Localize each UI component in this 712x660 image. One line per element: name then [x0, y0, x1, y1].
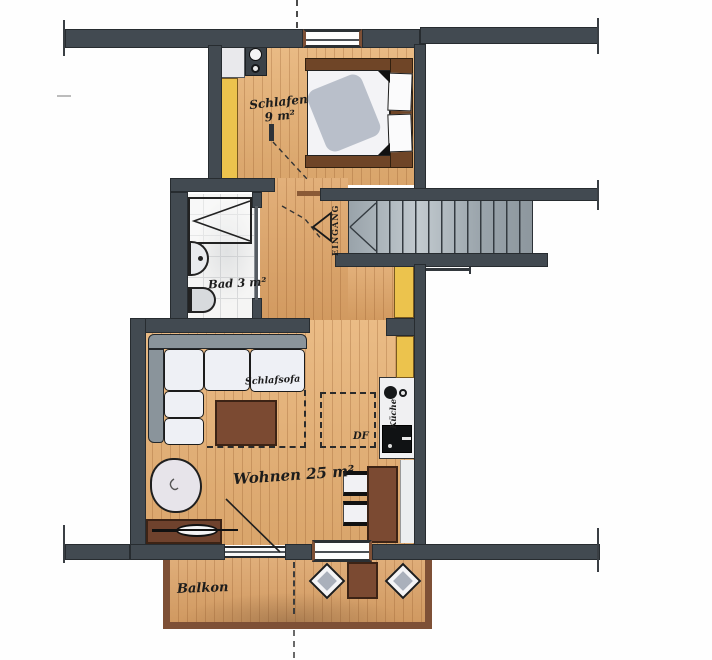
- sofa-cushion-corner: [164, 349, 204, 391]
- room-label-balkon: Balkon: [177, 580, 229, 597]
- bed-corner-mark-bottom: [378, 143, 390, 155]
- wohnen-area: 25 m²: [305, 462, 355, 483]
- stair-handrail: [425, 268, 471, 271]
- hob-burner-small: [399, 389, 407, 397]
- kitchen-tall-cabinet: [396, 336, 414, 378]
- window-mullion: [306, 39, 359, 41]
- kitchen-label: Küche: [389, 399, 399, 429]
- wall-tick-mid-right: [597, 180, 599, 210]
- shower: [188, 197, 252, 244]
- living-right-wall: [414, 264, 426, 545]
- dresser-knob-large: [249, 48, 262, 61]
- stairwell-top-wall: [320, 188, 598, 201]
- bottom-wall-left: [130, 544, 225, 560]
- oven-handle: [402, 437, 411, 440]
- sideboard-bowl-axis: [156, 529, 238, 531]
- top-wall-right: [362, 29, 420, 48]
- entrance-threshold: [297, 191, 320, 196]
- duct-strip: [400, 460, 414, 543]
- axis-dash-balcony: [293, 562, 295, 614]
- axis-dash-top: [296, 0, 298, 28]
- bed-pillow-bottom: [387, 114, 412, 153]
- wall-tick-top-right: [597, 18, 599, 54]
- living-window: [312, 540, 372, 562]
- wall-tick-bottom-left: [63, 525, 65, 563]
- stair-steps: [376, 201, 532, 253]
- bed-corner-mark-top: [378, 71, 390, 83]
- sofa-backrest-top: [148, 334, 307, 349]
- dresser-knob-small: [251, 64, 260, 73]
- window-mullion-2: [315, 551, 369, 553]
- top-wall-extension: [420, 27, 598, 44]
- entrance-label: EINGANG: [330, 202, 340, 256]
- bed-pillow-top: [387, 73, 412, 112]
- bedroom-door-leaf: [269, 124, 274, 141]
- bedroom-left-wall: [208, 45, 222, 185]
- bottom-wall-mid-stub: [285, 544, 312, 560]
- sofa-cushion-chaise-1: [164, 391, 204, 418]
- floor-plan: Schlafen 9 m² Bad 3 m² EINGANG Schlafsof…: [0, 0, 712, 660]
- hall-lower-floor: [348, 267, 398, 320]
- sofa-cushion-mid: [204, 349, 250, 391]
- balcony-door-glass-line: [225, 551, 285, 553]
- hob-burner-large: [384, 386, 397, 399]
- sofa-backrest-left: [148, 349, 164, 443]
- sofa-foldout-outline: [207, 390, 306, 448]
- pencil-line: [57, 95, 71, 97]
- bad-name: Bad: [208, 276, 234, 291]
- bedroom-bottom-wall: [170, 178, 275, 192]
- bottom-wall-extension-left: [65, 544, 130, 560]
- bottom-wall-right: [372, 544, 600, 560]
- roof-window-label: DF: [353, 431, 369, 442]
- hall-cabinet: [394, 266, 414, 318]
- living-left-wall: [130, 318, 146, 558]
- living-top-wall: [130, 318, 310, 333]
- bathroom-left-wall: [170, 192, 188, 320]
- dining-table: [367, 466, 398, 543]
- stairwell-bottom-wall: [335, 253, 548, 267]
- axis-dash-bottom: [293, 630, 295, 658]
- bedroom-right-wall: [414, 44, 426, 194]
- round-table: [150, 458, 202, 513]
- sink-drain: [198, 256, 203, 261]
- wall-tick-bottom-right: [597, 528, 599, 572]
- bad-area: 3 m²: [237, 274, 267, 290]
- oven-knob: [388, 444, 392, 448]
- balcony-table: [347, 562, 378, 599]
- sofa-cushion-chaise-2: [164, 418, 204, 445]
- bathroom-wall-stub-bottom: [252, 298, 262, 320]
- top-wall: [65, 29, 303, 48]
- wall-tick-top-left: [63, 20, 65, 56]
- balcony-door: [225, 546, 285, 558]
- bedroom-window: [303, 29, 362, 48]
- dining-chair-2: [343, 501, 368, 526]
